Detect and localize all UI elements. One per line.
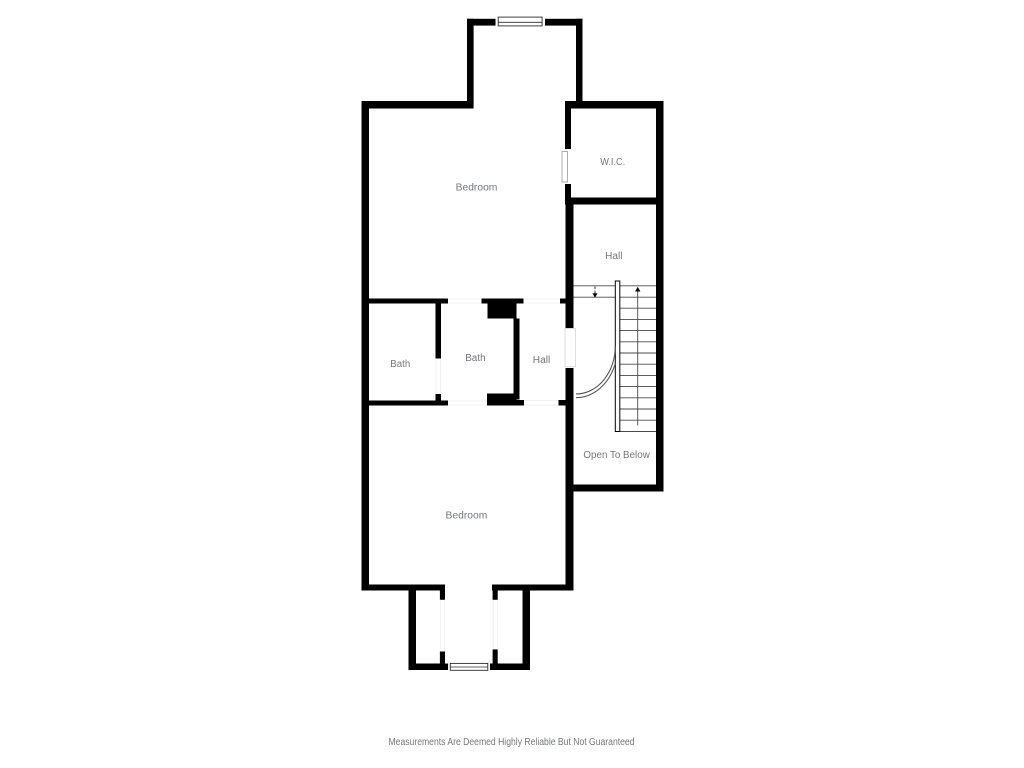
svg-text:Bath: Bath [465,353,485,364]
svg-text:Bedroom: Bedroom [456,183,498,194]
svg-text:Bath: Bath [390,359,410,370]
svg-text:Bedroom: Bedroom [446,511,488,522]
svg-text:Hall: Hall [533,355,551,366]
svg-text:Open To Below: Open To Below [583,450,650,461]
svg-text:W.I.C.: W.I.C. [600,157,625,168]
svg-text:Hall: Hall [605,251,622,262]
svg-text:Measurements Are Deemed Highly: Measurements Are Deemed Highly Reliable … [389,737,635,748]
